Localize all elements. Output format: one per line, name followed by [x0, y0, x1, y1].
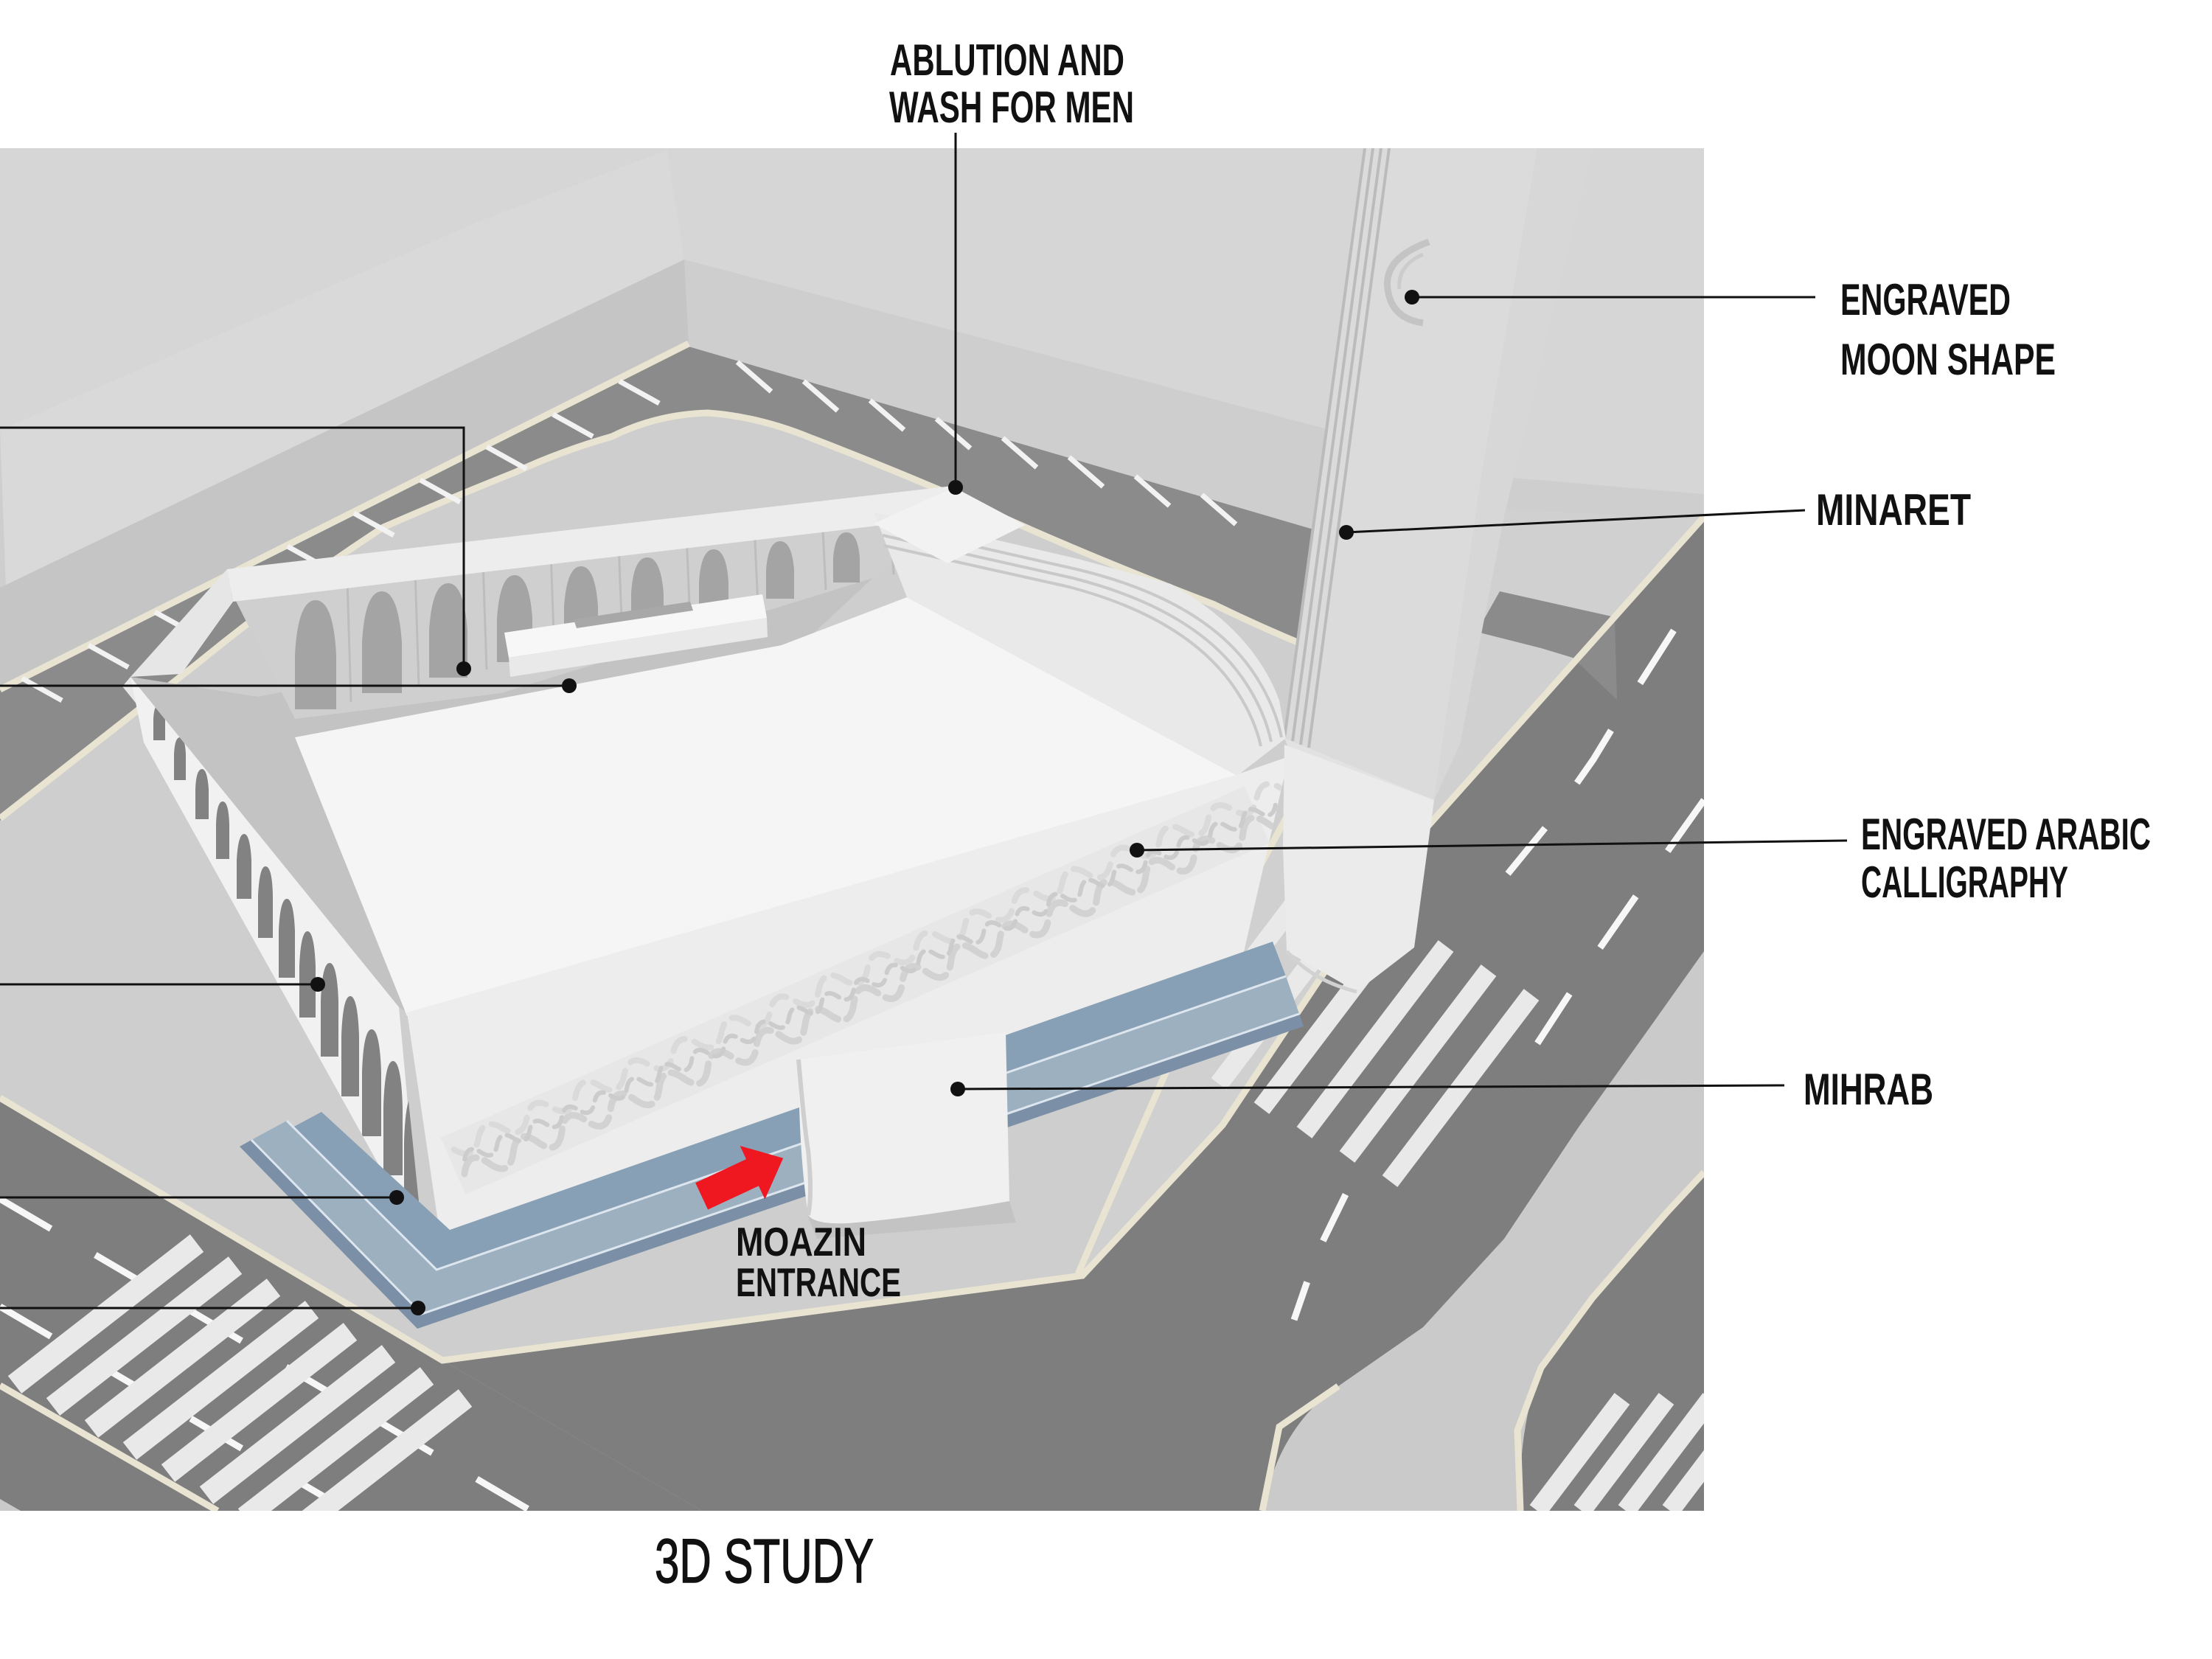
svg-text:CALLIGRAPHY: CALLIGRAPHY: [1861, 858, 2068, 907]
svg-text:MOAZIN: MOAZIN: [736, 1219, 866, 1265]
svg-text:ENGRAVED: ENGRAVED: [1840, 275, 2011, 324]
svg-text:MINARET: MINARET: [1816, 485, 1971, 535]
svg-text:3D STUDY: 3D STUDY: [655, 1526, 874, 1596]
svg-text:WASH FOR MEN: WASH FOR MEN: [889, 83, 1134, 132]
svg-text:MIHRAB: MIHRAB: [1804, 1065, 1933, 1114]
svg-text:MOON SHAPE: MOON SHAPE: [1840, 335, 2056, 384]
svg-text:ENTRANCE: ENTRANCE: [736, 1259, 901, 1305]
svg-text:ENGRAVED ARABIC: ENGRAVED ARABIC: [1861, 810, 2151, 859]
svg-text:ABLUTION AND: ABLUTION AND: [890, 35, 1124, 85]
